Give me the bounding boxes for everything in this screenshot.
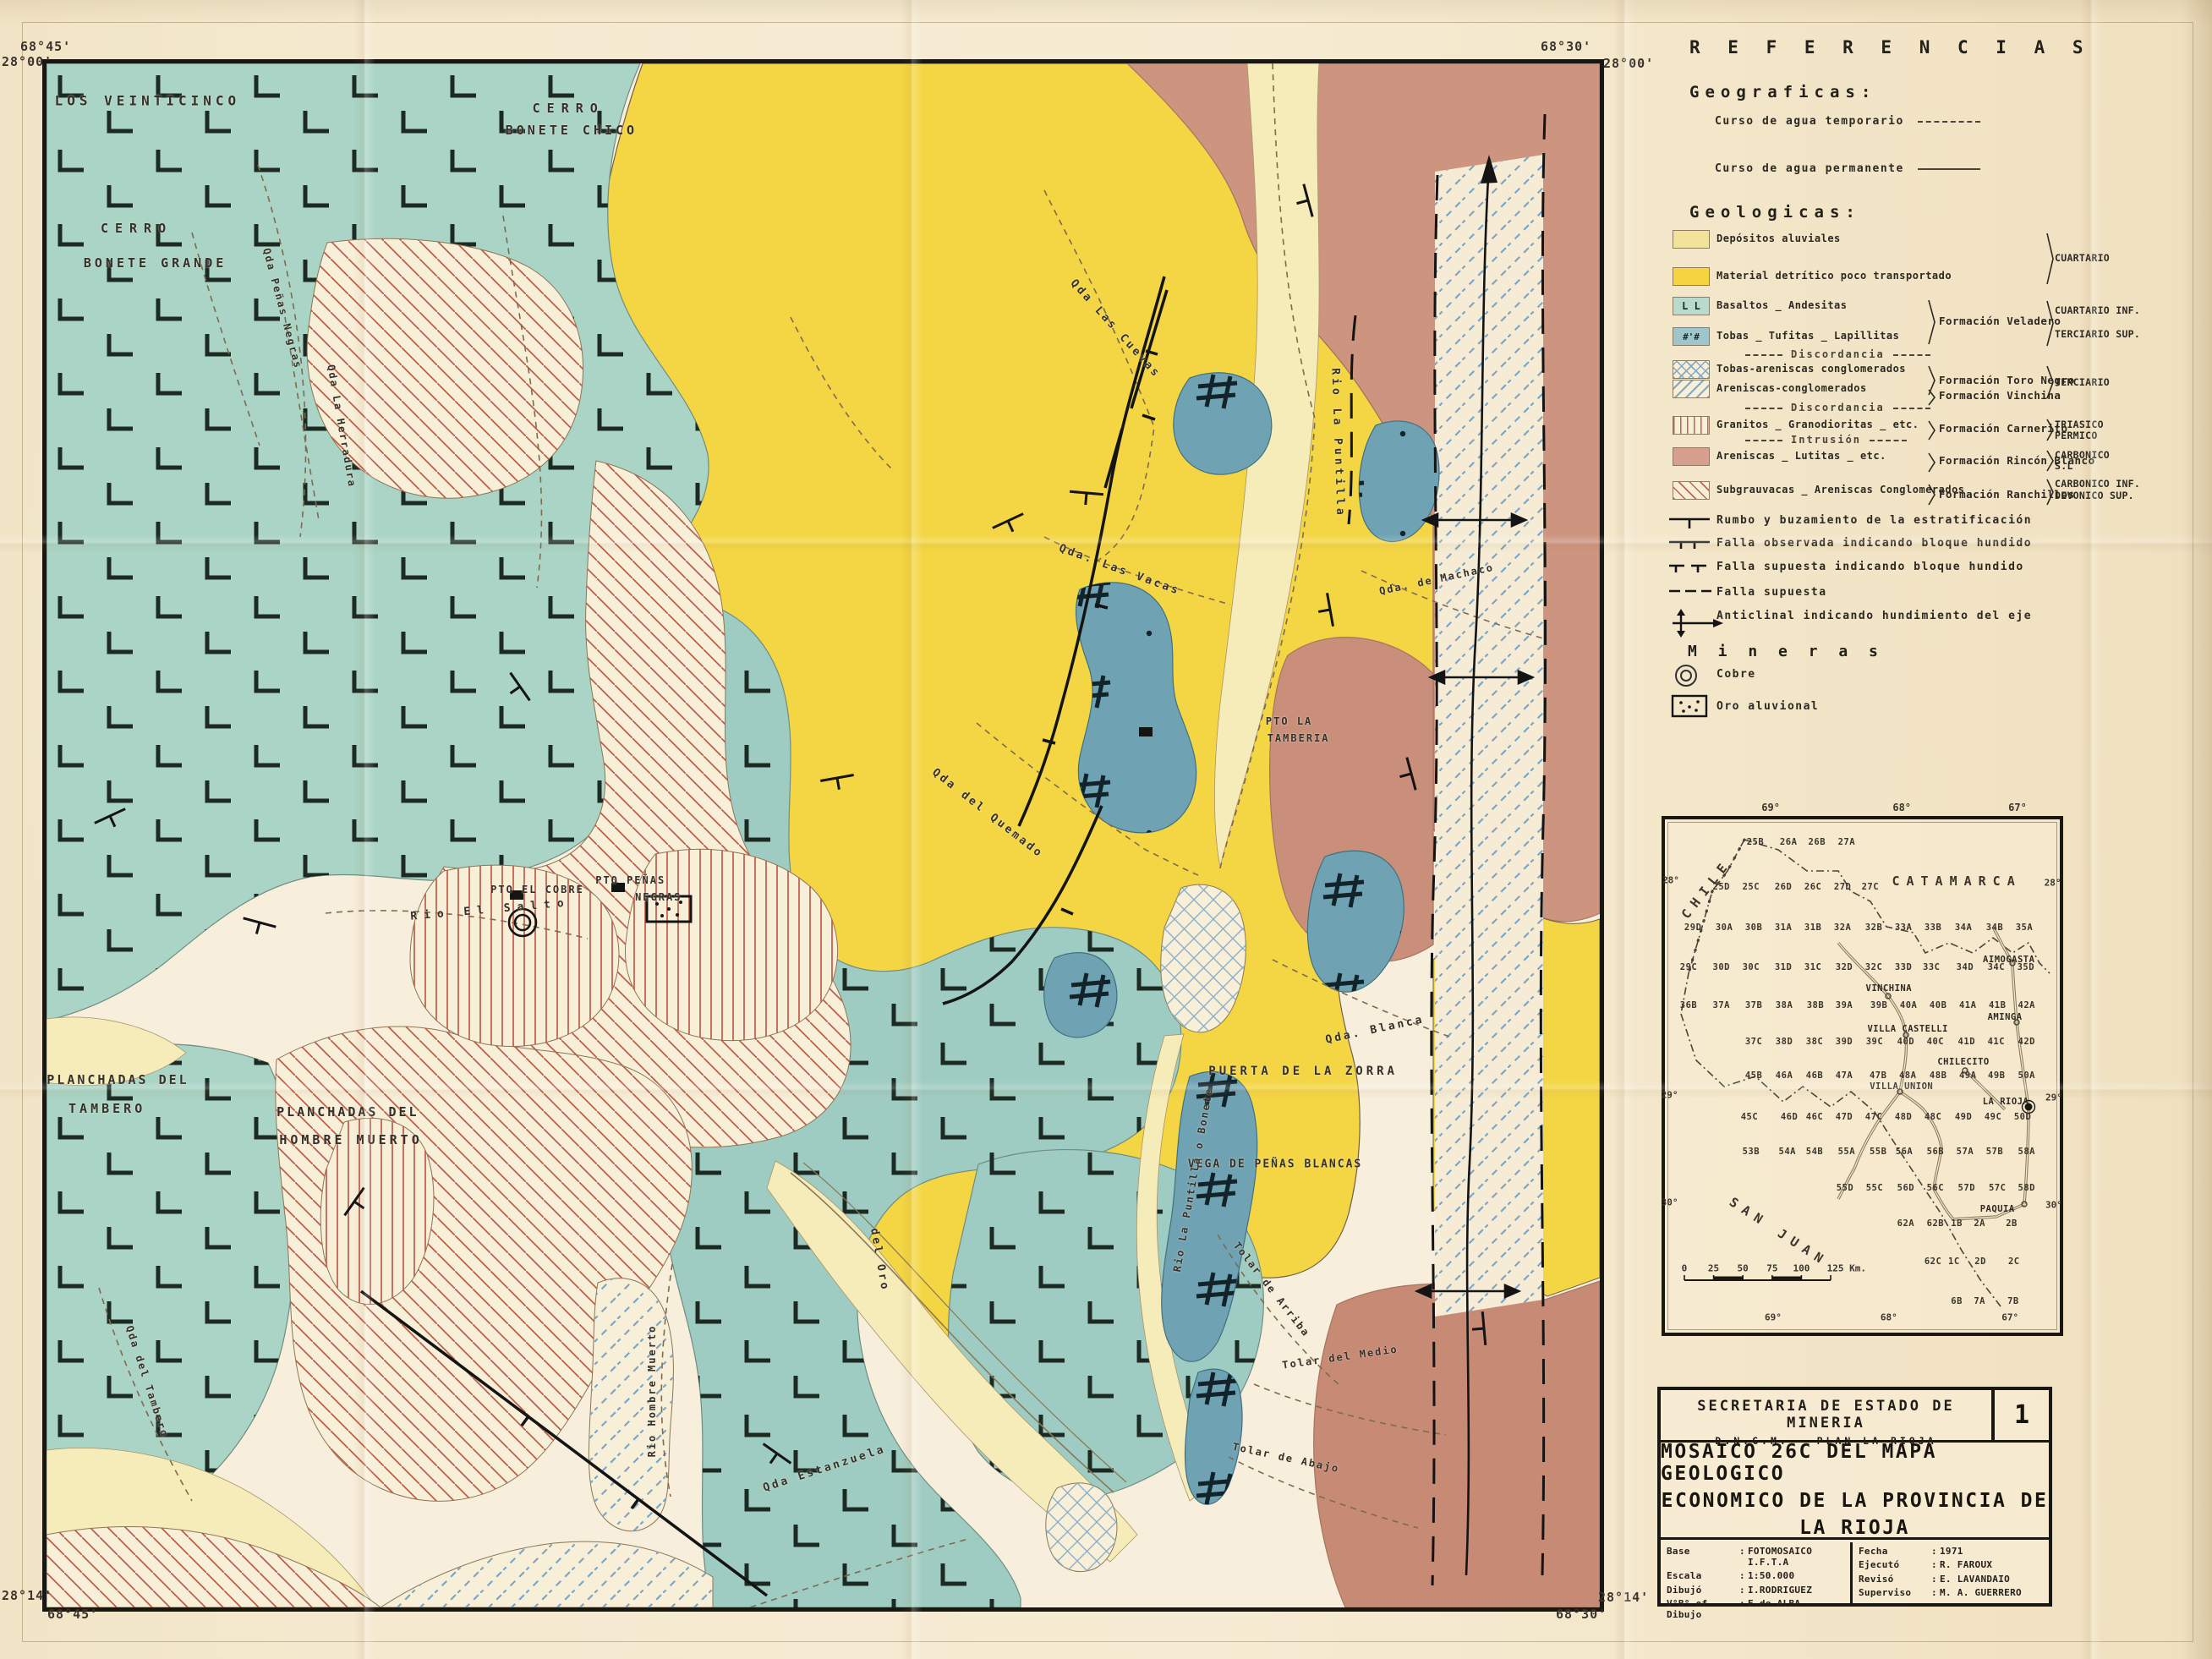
index-cell-57D: 57D bbox=[1958, 1183, 1975, 1193]
index-cell-1B: 1B bbox=[1951, 1218, 1963, 1229]
map-place-label: NEGRAS bbox=[635, 891, 682, 903]
title-block-field: Escala:1:50.000 bbox=[1667, 1570, 1850, 1581]
title-block-table: Base:FOTOMOSAICO I.F.T.AEscala:1:50.000D… bbox=[1661, 1542, 2049, 1603]
index-cell-50D: 50D bbox=[2014, 1112, 2031, 1122]
index-map: 25B26A26B27A25D25C26D26C27D27C29D30A30B3… bbox=[1662, 816, 2063, 1336]
coord-top-left-lon: 68°45' bbox=[20, 39, 71, 54]
map-place-label: Qda La Herradura bbox=[325, 364, 358, 489]
legend-separator: Discordancia bbox=[1745, 402, 1930, 413]
index-cell-37C: 37C bbox=[1745, 1037, 1762, 1047]
index-cell-38D: 38D bbox=[1776, 1037, 1793, 1047]
index-cell-39A: 39A bbox=[1836, 1000, 1853, 1010]
legend-geologicas-heading: Geologicas: bbox=[1689, 203, 1861, 222]
legend-symbol-label: Falla supuesta indicando bloque hundido bbox=[1716, 561, 2024, 573]
map-place-label: Rio Hombre Muerto bbox=[646, 1325, 658, 1458]
index-cell-31C: 31C bbox=[1804, 962, 1821, 972]
index-cell-33A: 33A bbox=[1895, 923, 1912, 933]
legend-brace bbox=[2046, 450, 2055, 472]
index-region-label: CATAMARCA bbox=[1892, 873, 2021, 889]
index-cell-7A: 7A bbox=[1974, 1296, 1985, 1306]
legend-unit-label: Tobas _ Tufitas _ Lapillitas bbox=[1716, 330, 1899, 342]
index-cell-62C: 62C bbox=[1925, 1257, 1941, 1267]
index-lat-label: 29° bbox=[2045, 1092, 2062, 1103]
coord-bottom-left-lon: 68°45' bbox=[47, 1607, 98, 1622]
map-place-label: Rio El Salto bbox=[410, 896, 572, 923]
index-cell-26D: 26D bbox=[1775, 882, 1792, 892]
map-labels-layer: LOS VEINTICINCOCERROBONETE CHICOCERROBON… bbox=[47, 63, 1600, 1607]
title-block-field: Revisó:E. LAVANDAIO bbox=[1859, 1574, 2049, 1585]
fault-supposed-block-icon bbox=[1667, 559, 1713, 581]
coord-top-right-lat: 28°00' bbox=[1603, 56, 1654, 71]
index-cell-58A: 58A bbox=[2018, 1147, 2035, 1157]
title-block-field: Fecha:1971 bbox=[1859, 1546, 2049, 1557]
index-cell-2A: 2A bbox=[1974, 1218, 1985, 1229]
legend-swatch-basaltos: L L bbox=[1673, 297, 1710, 315]
map-place-label: VEGA DE PEÑAS BLANCAS bbox=[1188, 1158, 1362, 1170]
index-cell-57B: 57B bbox=[1986, 1147, 2003, 1157]
index-cell-34A: 34A bbox=[1955, 923, 1972, 933]
map-place-label: PTO PEÑAS bbox=[595, 874, 665, 886]
index-cell-56B: 56B bbox=[1927, 1147, 1944, 1157]
index-cell-39B: 39B bbox=[1870, 1000, 1887, 1010]
index-cell-26C: 26C bbox=[1804, 882, 1821, 892]
legend-swatch-aluvial bbox=[1673, 230, 1710, 249]
map-place-label: BONETE GRANDE bbox=[84, 255, 227, 271]
index-cell-46A: 46A bbox=[1776, 1070, 1793, 1081]
legend-age-label: DEVONICO SUP. bbox=[2055, 490, 2134, 501]
title-block-field: Base:FOTOMOSAICO I.F.T.A bbox=[1667, 1546, 1850, 1568]
index-scale-bar bbox=[1684, 1275, 1831, 1280]
gold-icon bbox=[1671, 693, 1708, 722]
legend-age-label: CARBONICO bbox=[2055, 449, 2110, 461]
index-cell-56C: 56C bbox=[1927, 1183, 1944, 1193]
index-cell-31D: 31D bbox=[1775, 962, 1792, 972]
index-lon-label: 69° bbox=[1761, 802, 1780, 813]
index-cell-40D: 40D bbox=[1897, 1037, 1914, 1047]
index-cell-2B: 2B bbox=[2006, 1218, 2018, 1229]
index-cell-54A: 54A bbox=[1779, 1147, 1796, 1157]
index-cell-49A: 49A bbox=[1959, 1070, 1976, 1081]
legend-mineras-heading: M i n e r a s bbox=[1688, 643, 1884, 660]
index-cell-31A: 31A bbox=[1775, 923, 1792, 933]
index-cell-48B: 48B bbox=[1930, 1070, 1946, 1081]
index-cell-41A: 41A bbox=[1959, 1000, 1976, 1010]
map-place-label: Qda. Las Vacas bbox=[1058, 542, 1183, 598]
legend-brace bbox=[2046, 300, 2055, 347]
legend-separator: Intrusión bbox=[1745, 434, 1907, 446]
index-cell-32D: 32D bbox=[1836, 962, 1853, 972]
legend-brace bbox=[1928, 452, 1936, 473]
index-cell-2D: 2D bbox=[1974, 1257, 1986, 1267]
fault-observed-icon bbox=[1667, 535, 1713, 557]
index-lat-label: 29° bbox=[1662, 1089, 1678, 1100]
index-cell-25B: 25B bbox=[1747, 837, 1764, 847]
index-cell-30A: 30A bbox=[1716, 923, 1733, 933]
map-place-label: TAMBERIA bbox=[1268, 732, 1330, 744]
index-cell-30B: 30B bbox=[1745, 923, 1762, 933]
index-cell-7B: 7B bbox=[2007, 1296, 2019, 1306]
index-cell-55C: 55C bbox=[1866, 1183, 1883, 1193]
geologic-map: LOS VEINTICINCOCERROBONETE CHICOCERROBON… bbox=[42, 59, 1604, 1612]
legend-age-label: CUARTARIO INF. bbox=[2055, 304, 2140, 316]
legend-title: R E F E R E N C I A S bbox=[1689, 37, 2092, 57]
index-scale-tick: 25 bbox=[1708, 1263, 1719, 1274]
index-cell-56D: 56D bbox=[1897, 1183, 1914, 1193]
legend-water-item: Curso de agua temporario bbox=[1715, 115, 1980, 128]
index-lon-label: 67° bbox=[2008, 802, 2027, 813]
index-lat-label: 28° bbox=[1662, 875, 1679, 886]
index-cell-47C: 47C bbox=[1865, 1112, 1882, 1122]
index-cell-58D: 58D bbox=[2018, 1183, 2035, 1193]
fault-supposed-icon bbox=[1667, 584, 1713, 606]
index-cell-48C: 48C bbox=[1925, 1112, 1941, 1122]
map-place-label: BONETE CHICO bbox=[506, 123, 638, 138]
title-block-fields-left: Base:FOTOMOSAICO I.F.T.AEscala:1:50.000D… bbox=[1661, 1542, 1853, 1603]
index-cell-25C: 25C bbox=[1743, 882, 1760, 892]
map-place-label: Qda del Tambero bbox=[123, 1324, 171, 1439]
legend-unit-label: Tobas-areniscas conglomerados bbox=[1716, 363, 1906, 375]
map-place-label: PUERTA DE LA ZORRA bbox=[1208, 1065, 1398, 1078]
index-town-label: LA RIOJA bbox=[1983, 1097, 2029, 1107]
legend-age-label: TRIASICO bbox=[2055, 419, 2104, 430]
index-town-label: AIMOGASTA bbox=[1983, 955, 2034, 965]
strike-dip-icon bbox=[1667, 512, 1713, 534]
index-town-label: VILLA CASTELLI bbox=[1867, 1024, 1948, 1034]
map-place-label: Tolar de Abajo bbox=[1231, 1441, 1340, 1476]
title-block-field: Dibujó:I.RODRIGUEZ bbox=[1667, 1585, 1850, 1596]
index-town-label: AMINGA bbox=[1988, 1012, 2023, 1022]
coord-top-right-lon: 68°30' bbox=[1541, 39, 1591, 54]
index-cell-53B: 53B bbox=[1743, 1147, 1760, 1157]
map-place-label: Rio La Puntilla bbox=[1328, 368, 1346, 518]
map-place-label: Qda. de Machaco bbox=[1378, 561, 1495, 597]
index-cell-46D: 46D bbox=[1781, 1112, 1798, 1122]
index-cell-47A: 47A bbox=[1836, 1070, 1853, 1081]
sheet-number: 1 bbox=[1995, 1390, 2049, 1443]
index-cell-36B: 36B bbox=[1680, 1000, 1697, 1010]
organization-name: SECRETARIA DE ESTADO DE MINERIA bbox=[1661, 1398, 1991, 1432]
legend-age-label: TERCIARIO bbox=[2055, 376, 2110, 388]
legend-unit-label: Depósitos aluviales bbox=[1716, 233, 1841, 244]
index-cell-26A: 26A bbox=[1780, 837, 1797, 847]
map-place-label: Tolar de Arriba bbox=[1231, 1240, 1312, 1339]
index-town-label: CHILECITO bbox=[1937, 1057, 1989, 1067]
map-title: MOSAICO 26C DEL MAPA GEOLOGICOECONOMICO … bbox=[1661, 1443, 2049, 1540]
index-cell-31B: 31B bbox=[1804, 923, 1821, 933]
title-block-field: Superviso:M. A. GUERRERO bbox=[1859, 1587, 2049, 1598]
legend-brace bbox=[2046, 365, 2055, 399]
map-place-label: PTO EL COBRE bbox=[490, 884, 584, 895]
index-cell-56A: 56A bbox=[1896, 1147, 1913, 1157]
index-cell-38A: 38A bbox=[1776, 1000, 1793, 1010]
legend-swatch-granitos bbox=[1673, 416, 1710, 435]
index-cell-35A: 35A bbox=[2016, 923, 2033, 933]
index-cell-38B: 38B bbox=[1807, 1000, 1824, 1010]
legend-symbol-label: Falla supuesta bbox=[1716, 586, 1827, 599]
legend-age-label: TERCIARIO SUP. bbox=[2055, 328, 2140, 340]
legend-swatch-detritico bbox=[1673, 267, 1710, 286]
title-block-field: V°B° of Dibujo:E.de ALBA bbox=[1667, 1598, 1850, 1620]
index-town-label: PAQUIA bbox=[1980, 1204, 2015, 1214]
index-lon-label: 68° bbox=[1881, 1311, 1897, 1322]
index-scale-tick: 75 bbox=[1766, 1263, 1777, 1274]
legend-age-label: CUARTARIO bbox=[2055, 252, 2110, 264]
title-block: SECRETARIA DE ESTADO DE MINERIA D.N.G.M.… bbox=[1657, 1387, 2052, 1607]
map-place-label: Tolar del Medio bbox=[1282, 1344, 1399, 1372]
legend-swatch-ranchillos bbox=[1673, 481, 1710, 500]
map-place-label: del Oro bbox=[868, 1228, 891, 1293]
legend-separator: Discordancia bbox=[1745, 348, 1930, 360]
index-cell-32A: 32A bbox=[1834, 923, 1851, 933]
map-place-label: Qda Peñas Negras bbox=[260, 247, 304, 370]
index-cell-37A: 37A bbox=[1713, 1000, 1730, 1010]
index-cell-34D: 34D bbox=[1957, 962, 1974, 972]
index-lon-label: 69° bbox=[1765, 1311, 1782, 1322]
map-place-label: CERRO bbox=[533, 101, 605, 116]
map-place-label: PLANCHADAS DEL bbox=[47, 1072, 189, 1087]
index-scale-tick: 0 bbox=[1682, 1263, 1688, 1274]
legend-unit-label: Basaltos _ Andesitas bbox=[1716, 299, 1848, 311]
index-cell-33B: 33B bbox=[1925, 923, 1941, 933]
index-cell-55D: 55D bbox=[1837, 1183, 1853, 1193]
legend-swatch-tobas: #'# bbox=[1673, 327, 1710, 346]
legend-formation-label: Formación Vinchina bbox=[1939, 389, 2061, 402]
legend-brace bbox=[1928, 389, 1936, 406]
copper-icon bbox=[1671, 661, 1701, 693]
legend-brace bbox=[2046, 233, 2055, 285]
index-cell-62B: 62B bbox=[1927, 1218, 1944, 1229]
index-cell-55B: 55B bbox=[1870, 1147, 1886, 1157]
index-cell-32B: 32B bbox=[1865, 923, 1882, 933]
coord-bottom-left-lat: 28°14' bbox=[2, 1588, 52, 1603]
index-cell-49D: 49D bbox=[1955, 1112, 1972, 1122]
index-lat-label: 30° bbox=[1662, 1196, 1678, 1207]
map-place-label: Rio La Puntilla o Bonete bbox=[1171, 1087, 1215, 1273]
index-cell-47D: 47D bbox=[1836, 1112, 1853, 1122]
legend-brace bbox=[1928, 299, 1936, 345]
index-cell-45B: 45B bbox=[1745, 1070, 1762, 1081]
title-block-field: Ejecutó:R. FAROUX bbox=[1859, 1559, 2049, 1570]
index-cell-57A: 57A bbox=[1957, 1147, 1974, 1157]
index-cell-37B: 37B bbox=[1745, 1000, 1762, 1010]
index-cell-40A: 40A bbox=[1900, 1000, 1917, 1010]
index-cell-41D: 41D bbox=[1958, 1037, 1975, 1047]
index-cell-42D: 42D bbox=[2018, 1037, 2035, 1047]
index-lon-label: 68° bbox=[1892, 802, 1911, 813]
map-place-label: CERRO bbox=[101, 221, 172, 236]
index-cell-27D: 27D bbox=[1834, 882, 1851, 892]
legend-unit-label: Granitos _ Granodioritas _ etc. bbox=[1716, 419, 1919, 430]
map-place-label: Qda Estanzuela bbox=[762, 1443, 888, 1494]
index-cell-29D: 29D bbox=[1684, 923, 1701, 933]
legend-brace bbox=[1928, 484, 1936, 506]
index-lon-label: 67° bbox=[2001, 1311, 2018, 1322]
index-cell-54B: 54B bbox=[1806, 1147, 1823, 1157]
index-cell-48A: 48A bbox=[1899, 1070, 1916, 1081]
index-cell-26B: 26B bbox=[1809, 837, 1826, 847]
index-cell-2C: 2C bbox=[2008, 1257, 2020, 1267]
legend-swatch-vinchina bbox=[1673, 380, 1710, 398]
index-cell-32C: 32C bbox=[1865, 962, 1882, 972]
index-cell-50A: 50A bbox=[2018, 1070, 2035, 1081]
index-cell-6B: 6B bbox=[1951, 1296, 1963, 1306]
index-scale-tick: 100 bbox=[1793, 1263, 1810, 1274]
index-cell-27A: 27A bbox=[1838, 837, 1855, 847]
index-cell-30C: 30C bbox=[1743, 962, 1760, 972]
index-cell-34B: 34B bbox=[1986, 923, 2003, 933]
index-cell-40C: 40C bbox=[1927, 1037, 1944, 1047]
legend-age-label: S.L bbox=[2055, 460, 2073, 472]
index-cell-46B: 46B bbox=[1806, 1070, 1823, 1081]
legend-age-label: CARBONICO INF. bbox=[2055, 478, 2140, 490]
index-cell-1C: 1C bbox=[1948, 1257, 1960, 1267]
index-town-label: VILLA UNION bbox=[1870, 1081, 1933, 1092]
index-scale-tick: 50 bbox=[1738, 1263, 1749, 1274]
legend-unit-label: Areniscas _ Lutitas _ etc. bbox=[1716, 450, 1886, 462]
index-cell-46C: 46C bbox=[1806, 1112, 1823, 1122]
index-cell-48D: 48D bbox=[1895, 1112, 1912, 1122]
index-cell-39C: 39C bbox=[1866, 1037, 1883, 1047]
index-cell-40B: 40B bbox=[1930, 1000, 1946, 1010]
legend-unit-label: Material detrítico poco transportado bbox=[1716, 270, 1952, 282]
legend-symbol-label: Rumbo y buzamiento de la estratificación bbox=[1716, 514, 2032, 527]
map-title-line: LA RIOJA bbox=[1799, 1517, 1910, 1539]
legend-water-item: Curso de agua permanente bbox=[1715, 162, 1980, 175]
water-dashed bbox=[1918, 121, 1980, 123]
index-cell-42A: 42A bbox=[2018, 1000, 2035, 1010]
legend-mineral-label: Cobre bbox=[1716, 668, 1756, 681]
map-sheet: LOS VEINTICINCOCERROBONETE CHICOCERROBON… bbox=[0, 0, 2212, 1659]
legend-age-label: PERMICO bbox=[2055, 430, 2098, 441]
index-cell-55A: 55A bbox=[1838, 1147, 1855, 1157]
coord-top-left-lat: 28°00' bbox=[2, 54, 52, 69]
index-cell-38C: 38C bbox=[1806, 1037, 1823, 1047]
map-place-label: PTO LA bbox=[1266, 715, 1312, 727]
index-cell-45C: 45C bbox=[1741, 1112, 1758, 1122]
map-place-label: Qda Las Cuevas bbox=[1068, 277, 1163, 381]
legend-swatch-toronegro bbox=[1673, 360, 1710, 379]
legend-brace bbox=[2046, 479, 2055, 506]
map-place-label: TAMBERO bbox=[68, 1101, 145, 1116]
legend-formation-label: Formación Veladero bbox=[1939, 315, 2061, 327]
index-cell-41B: 41B bbox=[1989, 1000, 2006, 1010]
water-solid bbox=[1918, 168, 1980, 170]
legend-swatch-rincon bbox=[1673, 447, 1710, 466]
legend-brace bbox=[1928, 420, 1936, 441]
index-cell-49C: 49C bbox=[1985, 1112, 2001, 1122]
index-cell-33C: 33C bbox=[1923, 962, 1940, 972]
legend-panel: R E F E R E N C I A S Geograficas: Curso… bbox=[1664, 30, 2212, 791]
index-lat-label: 30° bbox=[2045, 1200, 2062, 1211]
index-cell-39D: 39D bbox=[1836, 1037, 1853, 1047]
index-cell-47B: 47B bbox=[1870, 1070, 1886, 1081]
map-place-label: Qda. Blanca bbox=[1324, 1013, 1426, 1046]
index-cell-30D: 30D bbox=[1713, 962, 1730, 972]
legend-unit-label: Areniscas-conglomerados bbox=[1716, 382, 1867, 394]
map-place-label: LOS VEINTICINCO bbox=[55, 92, 241, 108]
legend-symbol-label: Anticlinal indicando hundimiento del eje bbox=[1716, 610, 2032, 622]
index-cell-62A: 62A bbox=[1897, 1218, 1914, 1229]
title-block-header: SECRETARIA DE ESTADO DE MINERIA D.N.G.M.… bbox=[1661, 1390, 1995, 1443]
index-cell-41C: 41C bbox=[1988, 1037, 2005, 1047]
paper-fold bbox=[1613, 0, 1635, 1659]
coord-bottom-right-lon: 68°30' bbox=[1556, 1607, 1607, 1622]
index-lat-label: 28° bbox=[2045, 878, 2061, 889]
legend-geograficas-heading: Geograficas: bbox=[1689, 83, 1876, 101]
index-town-label: VINCHINA bbox=[1865, 983, 1912, 994]
map-place-label: PLANCHADAS DEL bbox=[276, 1104, 419, 1120]
index-cell-27C: 27C bbox=[1862, 882, 1879, 892]
index-cell-29C: 29C bbox=[1680, 962, 1697, 972]
index-cell-49B: 49B bbox=[1988, 1070, 2005, 1081]
index-cell-33D: 33D bbox=[1895, 962, 1912, 972]
map-title-line: ECONOMICO DE LA PROVINCIA DE bbox=[1662, 1490, 2049, 1512]
legend-symbol-label: Falla observada indicando bloque hundido bbox=[1716, 537, 2032, 550]
index-scale-unit: 125 Km. bbox=[1827, 1263, 1866, 1274]
map-place-label: Qda del Quemado bbox=[930, 767, 1046, 862]
index-cell-57C: 57C bbox=[1989, 1183, 2006, 1193]
title-block-fields-right: Fecha:1971Ejecutó:R. FAROUXRevisó:E. LAV… bbox=[1853, 1542, 2049, 1603]
legend-mineral-label: Oro aluvional bbox=[1716, 700, 1819, 713]
map-place-label: HOMBRE MUERTO bbox=[279, 1132, 422, 1147]
legend-brace bbox=[2046, 419, 2055, 441]
coord-bottom-right-lat: 28°14' bbox=[1598, 1590, 1649, 1605]
map-title-line: MOSAICO 26C DEL MAPA GEOLOGICO bbox=[1661, 1441, 2049, 1485]
